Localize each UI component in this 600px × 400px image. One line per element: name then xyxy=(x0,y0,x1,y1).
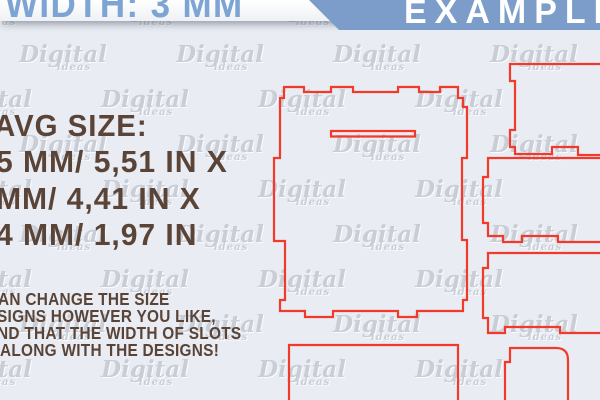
coin-slot-cutout xyxy=(331,131,415,137)
top-ribbon-white: WIDTH: 3 MM xyxy=(0,0,345,21)
panel-lower-right-outline xyxy=(483,253,600,333)
laser-cut-template-preview: DigitalideasDigitalideasDigitalideasDigi… xyxy=(0,0,600,400)
note-line-4: ALONG WITH THE DESIGNS! xyxy=(0,340,249,361)
example-banner: EXAMPLE xyxy=(300,0,600,30)
panel-front-outline xyxy=(274,87,467,317)
size-line-2-text: MM/ 4,41 IN X xyxy=(0,181,201,217)
slot-width-label: WIDTH: 3 MM xyxy=(5,0,243,21)
size-line-3-text: 4 MM/ 1,97 IN xyxy=(0,217,197,253)
size-line-1: 5 MM/ 5,51 IN X xyxy=(0,144,235,180)
avg-size-title-text: AVG SIZE: xyxy=(0,108,148,144)
note-line-4-text: ALONG WITH THE DESIGNS! xyxy=(0,340,219,361)
panel-bottom-center-outline xyxy=(289,345,458,400)
avg-size-title: AVG SIZE: xyxy=(0,108,156,144)
example-banner-label: EXAMPLE xyxy=(404,0,600,27)
panel-middle-right-outline xyxy=(483,158,600,242)
panel-top-right-outline xyxy=(510,64,600,155)
size-line-3: 4 MM/ 1,97 IN xyxy=(0,217,204,253)
size-line-2: MM/ 4,41 IN X xyxy=(0,181,207,217)
size-line-1-text: 5 MM/ 5,51 IN X xyxy=(0,144,228,180)
panel-rounded-corner-outline xyxy=(505,348,568,400)
